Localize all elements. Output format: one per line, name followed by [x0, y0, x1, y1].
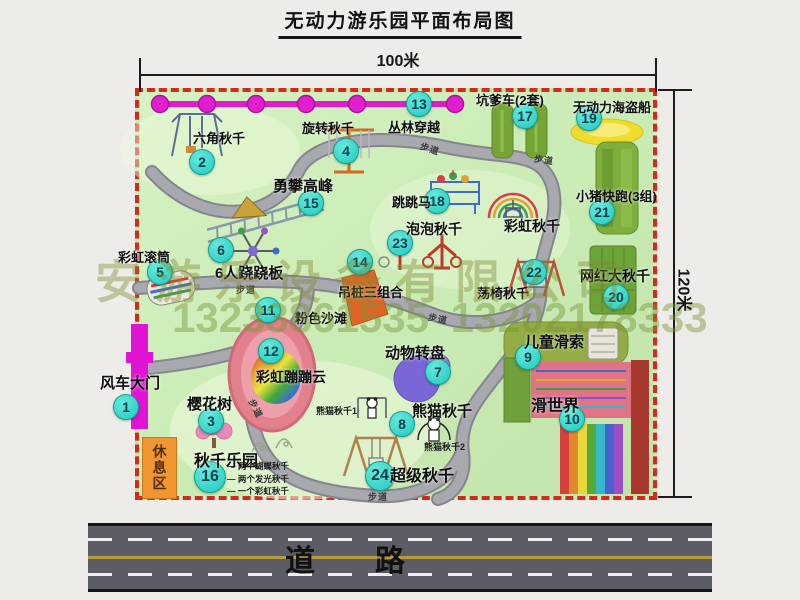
attraction-badge: 20	[603, 284, 629, 310]
attraction-label: 坑爹车(2套)	[476, 90, 544, 109]
attraction-badge: 2	[189, 149, 215, 175]
attraction-label: 彩虹秋千	[504, 216, 560, 236]
attraction-badge: 13	[406, 91, 432, 117]
walkway-label: 步道	[368, 490, 388, 503]
attraction-label: 跳跳马	[392, 192, 431, 211]
attraction-label: 小猪快跑(3组)	[576, 186, 657, 205]
road-label: 道 路	[33, 526, 657, 589]
sub-label: 熊猫秋千1	[316, 404, 357, 417]
attraction-label: 樱花树	[187, 393, 232, 414]
attraction-label: 荡椅秋千	[477, 283, 529, 302]
sub-label: 熊猫秋千2	[424, 440, 465, 453]
attraction-badge: 1	[113, 394, 139, 420]
attraction-label: 粉色沙滩	[295, 308, 347, 327]
attraction-label: 滑世界	[531, 392, 579, 416]
attraction-label: 动物转盘	[385, 342, 445, 363]
attraction-badge: 4	[333, 138, 359, 164]
attraction-label: 风车大门	[100, 372, 160, 393]
attraction-label: 旋转秋千	[302, 118, 354, 137]
attraction-label: 六角秋千	[193, 128, 245, 147]
attraction-label: 熊猫秋千	[412, 400, 472, 421]
attraction-badge: 22	[521, 259, 547, 285]
attraction-badge: 14	[347, 249, 373, 275]
walkway-label: 步道	[533, 152, 555, 168]
attraction-label: 网红大秋千	[580, 266, 650, 286]
rest-area-box: 休息区	[142, 437, 177, 499]
park-plan-image: 无动力游乐园平面布局图 100米 120米	[0, 0, 800, 600]
attraction-label: 儿童滑索	[524, 331, 584, 352]
road-band: 道 路	[88, 523, 712, 592]
attraction-label: 吊桩三组合	[338, 282, 403, 301]
dimension-width-label: 100米	[140, 47, 656, 71]
attraction-badge: 11	[255, 297, 281, 323]
walkway-label: 步道	[236, 283, 256, 296]
attraction-label: 无动力海盗船	[573, 97, 651, 116]
attraction-badge: 12	[258, 338, 284, 364]
attraction-label: 丛林穿越	[388, 117, 440, 136]
attraction-label: 彩虹蹦蹦云	[256, 367, 326, 387]
dimension-height-label: 120米	[673, 269, 697, 312]
attraction-label: 6人跷跷板	[215, 262, 283, 283]
swing-park-note-line: 两个发光秋千	[227, 473, 289, 486]
swing-park-notes: 两个蝴蝶秋千两个发光秋千一个彩虹秋千	[227, 460, 289, 498]
attraction-label: 勇攀高峰	[273, 175, 333, 196]
swing-park-note-line: 一个彩虹秋千	[227, 485, 289, 498]
swing-park-note-line: 两个蝴蝶秋千	[227, 460, 289, 473]
page-title: 无动力游乐园平面布局图	[278, 6, 521, 39]
attraction-label: 泡泡秋千	[406, 219, 462, 239]
attraction-label: 彩虹滚筒	[118, 247, 170, 266]
attraction-label: 超级秋千	[390, 462, 454, 486]
attraction-badge: 6	[208, 237, 234, 263]
